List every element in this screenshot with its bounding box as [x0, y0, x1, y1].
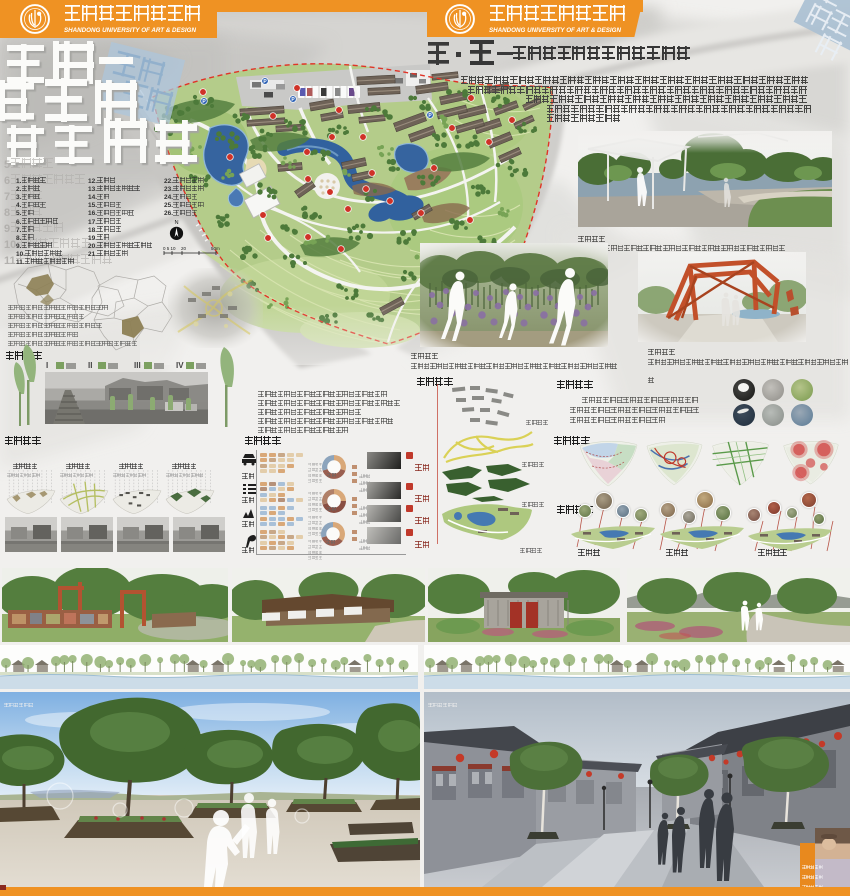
svg-text:50m: 50m: [211, 246, 220, 251]
svg-text:20: 20: [181, 246, 187, 251]
svg-text:0 5 10: 0 5 10: [163, 246, 176, 251]
svg-text:N: N: [174, 220, 178, 226]
